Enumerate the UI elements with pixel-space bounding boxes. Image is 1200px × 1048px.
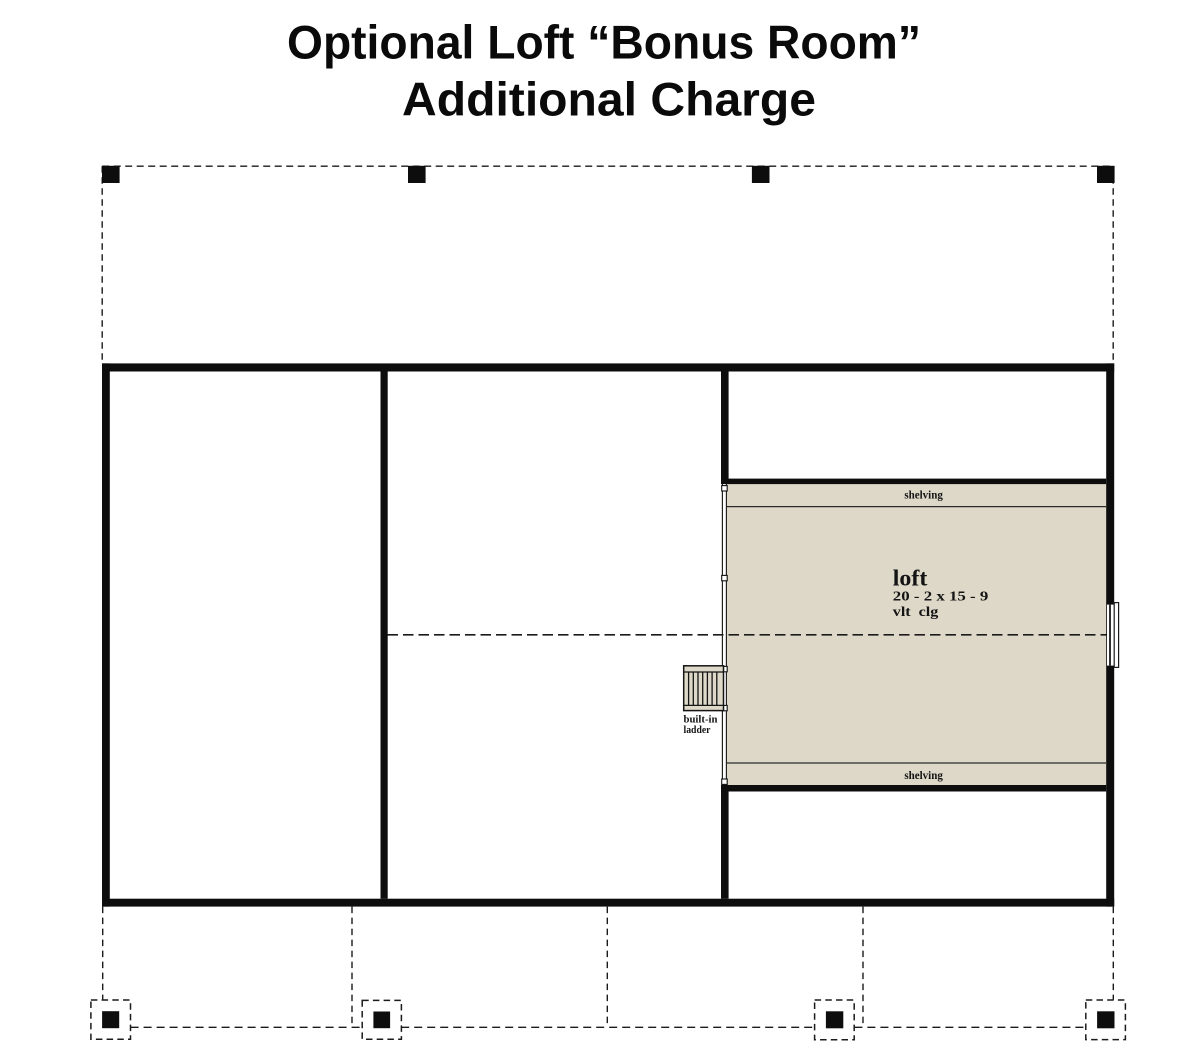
svg-text:loft: loft bbox=[893, 566, 928, 591]
svg-text:Additional Charge: Additional Charge bbox=[402, 74, 816, 127]
svg-text:20 - 2 x 15 - 9: 20 - 2 x 15 - 9 bbox=[893, 590, 989, 605]
svg-text:built-in: built-in bbox=[684, 715, 718, 726]
svg-text:ladder: ladder bbox=[684, 725, 712, 736]
svg-text:Optional Loft “Bonus Room”: Optional Loft “Bonus Room” bbox=[287, 17, 921, 70]
svg-text:shelving: shelving bbox=[904, 768, 943, 782]
svg-text:vlt clg: vlt clg bbox=[893, 605, 939, 620]
svg-text:shelving: shelving bbox=[904, 488, 943, 502]
